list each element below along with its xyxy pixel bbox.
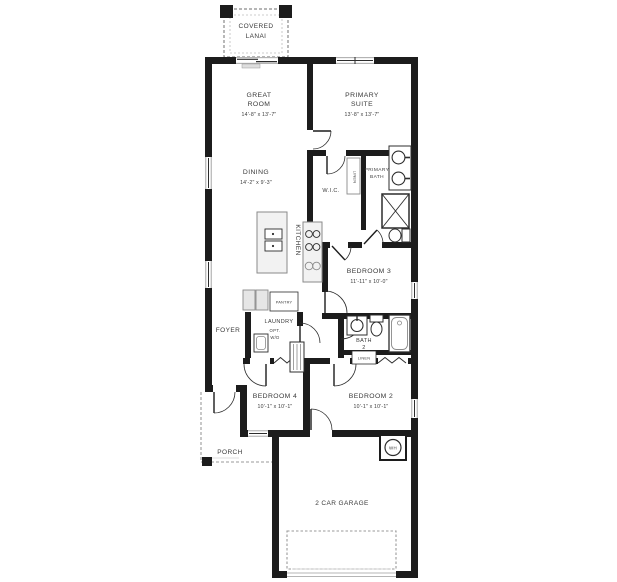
porch-post xyxy=(202,457,212,466)
primary-bath-label-2: BATH xyxy=(370,174,384,180)
front-door xyxy=(214,392,235,413)
window-bedroom2 xyxy=(411,399,418,418)
floor-plan: COVERED LANAI GREAT ROOM 14'-8" x 13'-7"… xyxy=(0,0,617,582)
great-room-label-2: ROOM xyxy=(248,101,271,108)
window-bedroom4 xyxy=(248,430,268,437)
kitchen-label: KITCHEN xyxy=(294,224,301,255)
porch-label: PORCH xyxy=(217,449,242,456)
laundry-label: LAUNDRY xyxy=(265,319,294,325)
primary-suite-label-2: SUITE xyxy=(351,101,373,108)
great-room-label-1: GREAT xyxy=(247,92,272,99)
great-room-dims: 14'-8" x 13'-7" xyxy=(242,112,277,118)
lanai-post xyxy=(220,5,233,18)
sliding-door xyxy=(236,57,278,68)
garage-entry-door xyxy=(311,409,332,430)
bedroom4-label: BEDROOM 4 xyxy=(253,393,297,400)
kitchen-island xyxy=(257,212,287,273)
covered-lanai-structure xyxy=(220,5,292,57)
kitchen-range-counter xyxy=(303,222,322,282)
lanai-post xyxy=(279,5,292,18)
bedroom2-door xyxy=(334,364,356,386)
primary-suite-door xyxy=(313,131,331,149)
bedroom4-dims: 10'-1" x 10'-1" xyxy=(258,404,293,410)
dryer xyxy=(256,290,268,310)
primary-suite-label-1: PRIMARY xyxy=(345,92,379,99)
primary-toilet xyxy=(389,229,410,242)
bathtub xyxy=(389,315,410,352)
bath2-toilet xyxy=(370,315,383,336)
primary-bath-label-1: PRIMARY xyxy=(365,167,390,173)
washer xyxy=(243,290,255,310)
bath2-label-2: 2 xyxy=(362,345,365,351)
laundry-opt-label-2: W/D xyxy=(270,335,279,340)
hall-door xyxy=(332,246,351,260)
window-bedroom3 xyxy=(411,282,418,299)
garage-label: 2 CAR GARAGE xyxy=(315,500,369,507)
bath2-fixtures xyxy=(347,315,410,352)
bedroom2-label: BEDROOM 2 xyxy=(349,393,393,400)
bedroom3-dims: 11'-11" x 10'-0" xyxy=(350,279,387,285)
bath2-vanity xyxy=(347,316,367,335)
dining-dims: 14'-2" x 9'-3" xyxy=(240,180,272,186)
window-dining-1 xyxy=(205,157,212,189)
covered-lanai-label-1: COVERED xyxy=(239,23,274,30)
laundry-opt-label-1: OPT. xyxy=(270,328,281,333)
covered-lanai-label-2: LANAI xyxy=(246,33,267,40)
bedroom3-label: BEDROOM 3 xyxy=(347,268,391,275)
primary-bath-door xyxy=(364,230,383,244)
linen-primary-label: LINEN xyxy=(353,171,358,183)
linen-bath2-label: LINEN xyxy=(358,356,370,361)
primary-vanity xyxy=(389,146,411,190)
pantry-label: PANTRY xyxy=(276,300,293,305)
bedroom4-door xyxy=(244,364,266,386)
water-heater-label: WH xyxy=(389,446,397,451)
bedroom2-dims: 10'-1" x 10'-1" xyxy=(354,404,389,410)
window-dining-2 xyxy=(205,261,212,288)
bath2-label-1: BATH xyxy=(356,338,372,344)
bedroom3-door xyxy=(325,291,347,313)
wic-door xyxy=(327,156,345,174)
wic-label: W.I.C. xyxy=(322,188,339,194)
window-primary-suite xyxy=(336,57,374,64)
garage-door xyxy=(287,531,396,569)
shower xyxy=(382,194,409,228)
foyer-label: FOYER xyxy=(216,327,240,334)
hall-closet xyxy=(290,342,304,372)
primary-suite-dims: 13'-8" x 13'-7" xyxy=(345,112,380,118)
primary-bath-fixtures xyxy=(382,146,411,242)
dining-label: DINING xyxy=(243,169,269,176)
floor-plan-canvas: COVERED LANAI GREAT ROOM 14'-8" x 13'-7"… xyxy=(0,0,617,582)
